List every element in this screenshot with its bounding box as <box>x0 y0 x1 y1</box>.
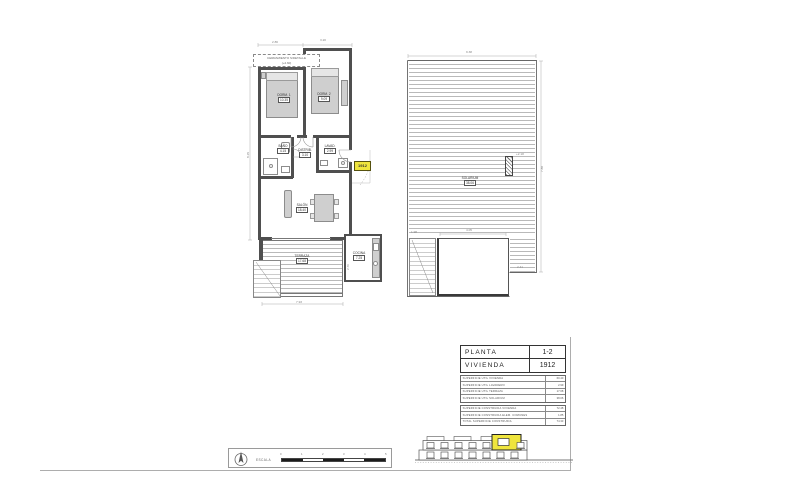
area-value: 72.48 <box>545 406 565 411</box>
elevation-parapets <box>427 437 498 441</box>
area-label: SUPERFICIE ÚTIL TERRAZA <box>461 390 545 393</box>
room-label-dorm2: DORM. 2 9.09 <box>312 92 336 102</box>
room-area: 3.10 <box>299 152 310 158</box>
area-value: 17.68 <box>545 389 565 394</box>
room-area: 4.15 <box>277 148 288 154</box>
vivienda-label: VIVIENDA <box>461 362 529 369</box>
annotation-line: (+2.60) <box>254 61 319 66</box>
building-elevation <box>413 431 575 465</box>
dimension-label: 7.93 <box>296 300 302 304</box>
table-row: VIVIENDA 1912 <box>461 359 565 372</box>
area-label: SUPERFICIE CONSTRUIDA VIVIENDA <box>461 407 545 410</box>
annotation-box: CERRAMIENTO S/DETALLE (+2.60) <box>253 54 320 67</box>
dimension-label: 1.98 <box>411 230 417 234</box>
dimension-lines <box>248 43 543 306</box>
table-row: SUPERFICIE ÚTIL SOLARIUM 38.06 <box>461 395 565 401</box>
room-label-solarium: SOLARIUM 38.06 <box>456 176 484 186</box>
area-label: TOTAL SUPERFICIE CONSTRUIDA <box>461 420 545 423</box>
room-label-terraza: TERRAZA 17.68 <box>290 254 314 264</box>
area-value: 60.40 <box>545 376 565 381</box>
table-row: TOTAL SUPERFICIE CONSTRUIDA 74.33 <box>461 419 565 425</box>
vivienda-value: 1912 <box>529 359 565 372</box>
areas-construidas-table: SUPERFICIE CONSTRUIDA VIVIENDA 72.48 SUP… <box>460 405 566 426</box>
planta-label: PLANTA <box>461 349 529 356</box>
unit-number-badge: 1912 <box>354 161 371 171</box>
stair-direction-line <box>256 240 433 296</box>
dimension-label: 3.20 <box>320 38 326 42</box>
area-value: 1.85 <box>545 412 565 417</box>
area-label: SUPERFICIE CONSTRUIDA ELEM. COMUNES <box>461 414 545 417</box>
dimension-label: 7.88 <box>540 166 544 172</box>
linework-overlay <box>0 0 788 477</box>
dimension-label: 9.38 <box>466 50 472 54</box>
room-area: 2.99 <box>324 148 335 154</box>
table-row: PLANTA 1-2 <box>461 346 565 359</box>
areas-utiles-table: SUPERFICIE ÚTIL VIVIENDA 60.40 SUPERFICI… <box>460 375 566 403</box>
area-label: SUPERFICIE ÚTIL LAVADERO <box>461 384 545 387</box>
room-label-distribuidor: DISTRIB. 3.10 <box>295 148 315 158</box>
area-label: SUPERFICIE ÚTIL VIVIENDA <box>461 377 545 380</box>
area-value: 38.06 <box>545 395 565 401</box>
room-area: 7.25 <box>353 255 364 261</box>
room-label-bano: BAÑO 4.15 <box>275 144 291 154</box>
room-label-cocina: COCINA 7.25 <box>348 251 370 261</box>
room-area: 17.68 <box>296 258 309 264</box>
room-area: 38.06 <box>464 180 477 186</box>
area-label: SUPERFICIE ÚTIL SOLARIUM <box>461 397 545 400</box>
dimension-label: 8.15 <box>246 152 250 158</box>
room-label-salon: SALÓN 18.40 <box>291 203 313 213</box>
room-label-dorm1: DORM. 1 10.35 <box>272 93 296 103</box>
drawing-sheet: CERRAMIENTO S/DETALLE (+2.60) <box>0 0 788 477</box>
title-table-main: PLANTA 1-2 VIVIENDA 1912 <box>460 345 566 373</box>
dimension-label: 2.70 <box>346 264 350 270</box>
dimension-label: 2.41 <box>517 265 523 269</box>
area-value: 2.99 <box>545 382 565 387</box>
room-area: 18.40 <box>296 207 309 213</box>
area-value: 74.33 <box>545 419 565 425</box>
level-note: +2.18 <box>516 152 524 156</box>
dimension-label: 2.86 <box>272 40 278 44</box>
dimension-label: 4.05 <box>466 228 472 232</box>
room-label-lavadero: LAVAD. 2.99 <box>320 144 340 154</box>
room-area: 10.35 <box>278 97 291 103</box>
room-area: 9.09 <box>318 96 329 102</box>
highlighted-unit-window <box>498 439 509 446</box>
north-arrow-icon <box>232 450 250 468</box>
planta-value: 1-2 <box>529 346 565 358</box>
